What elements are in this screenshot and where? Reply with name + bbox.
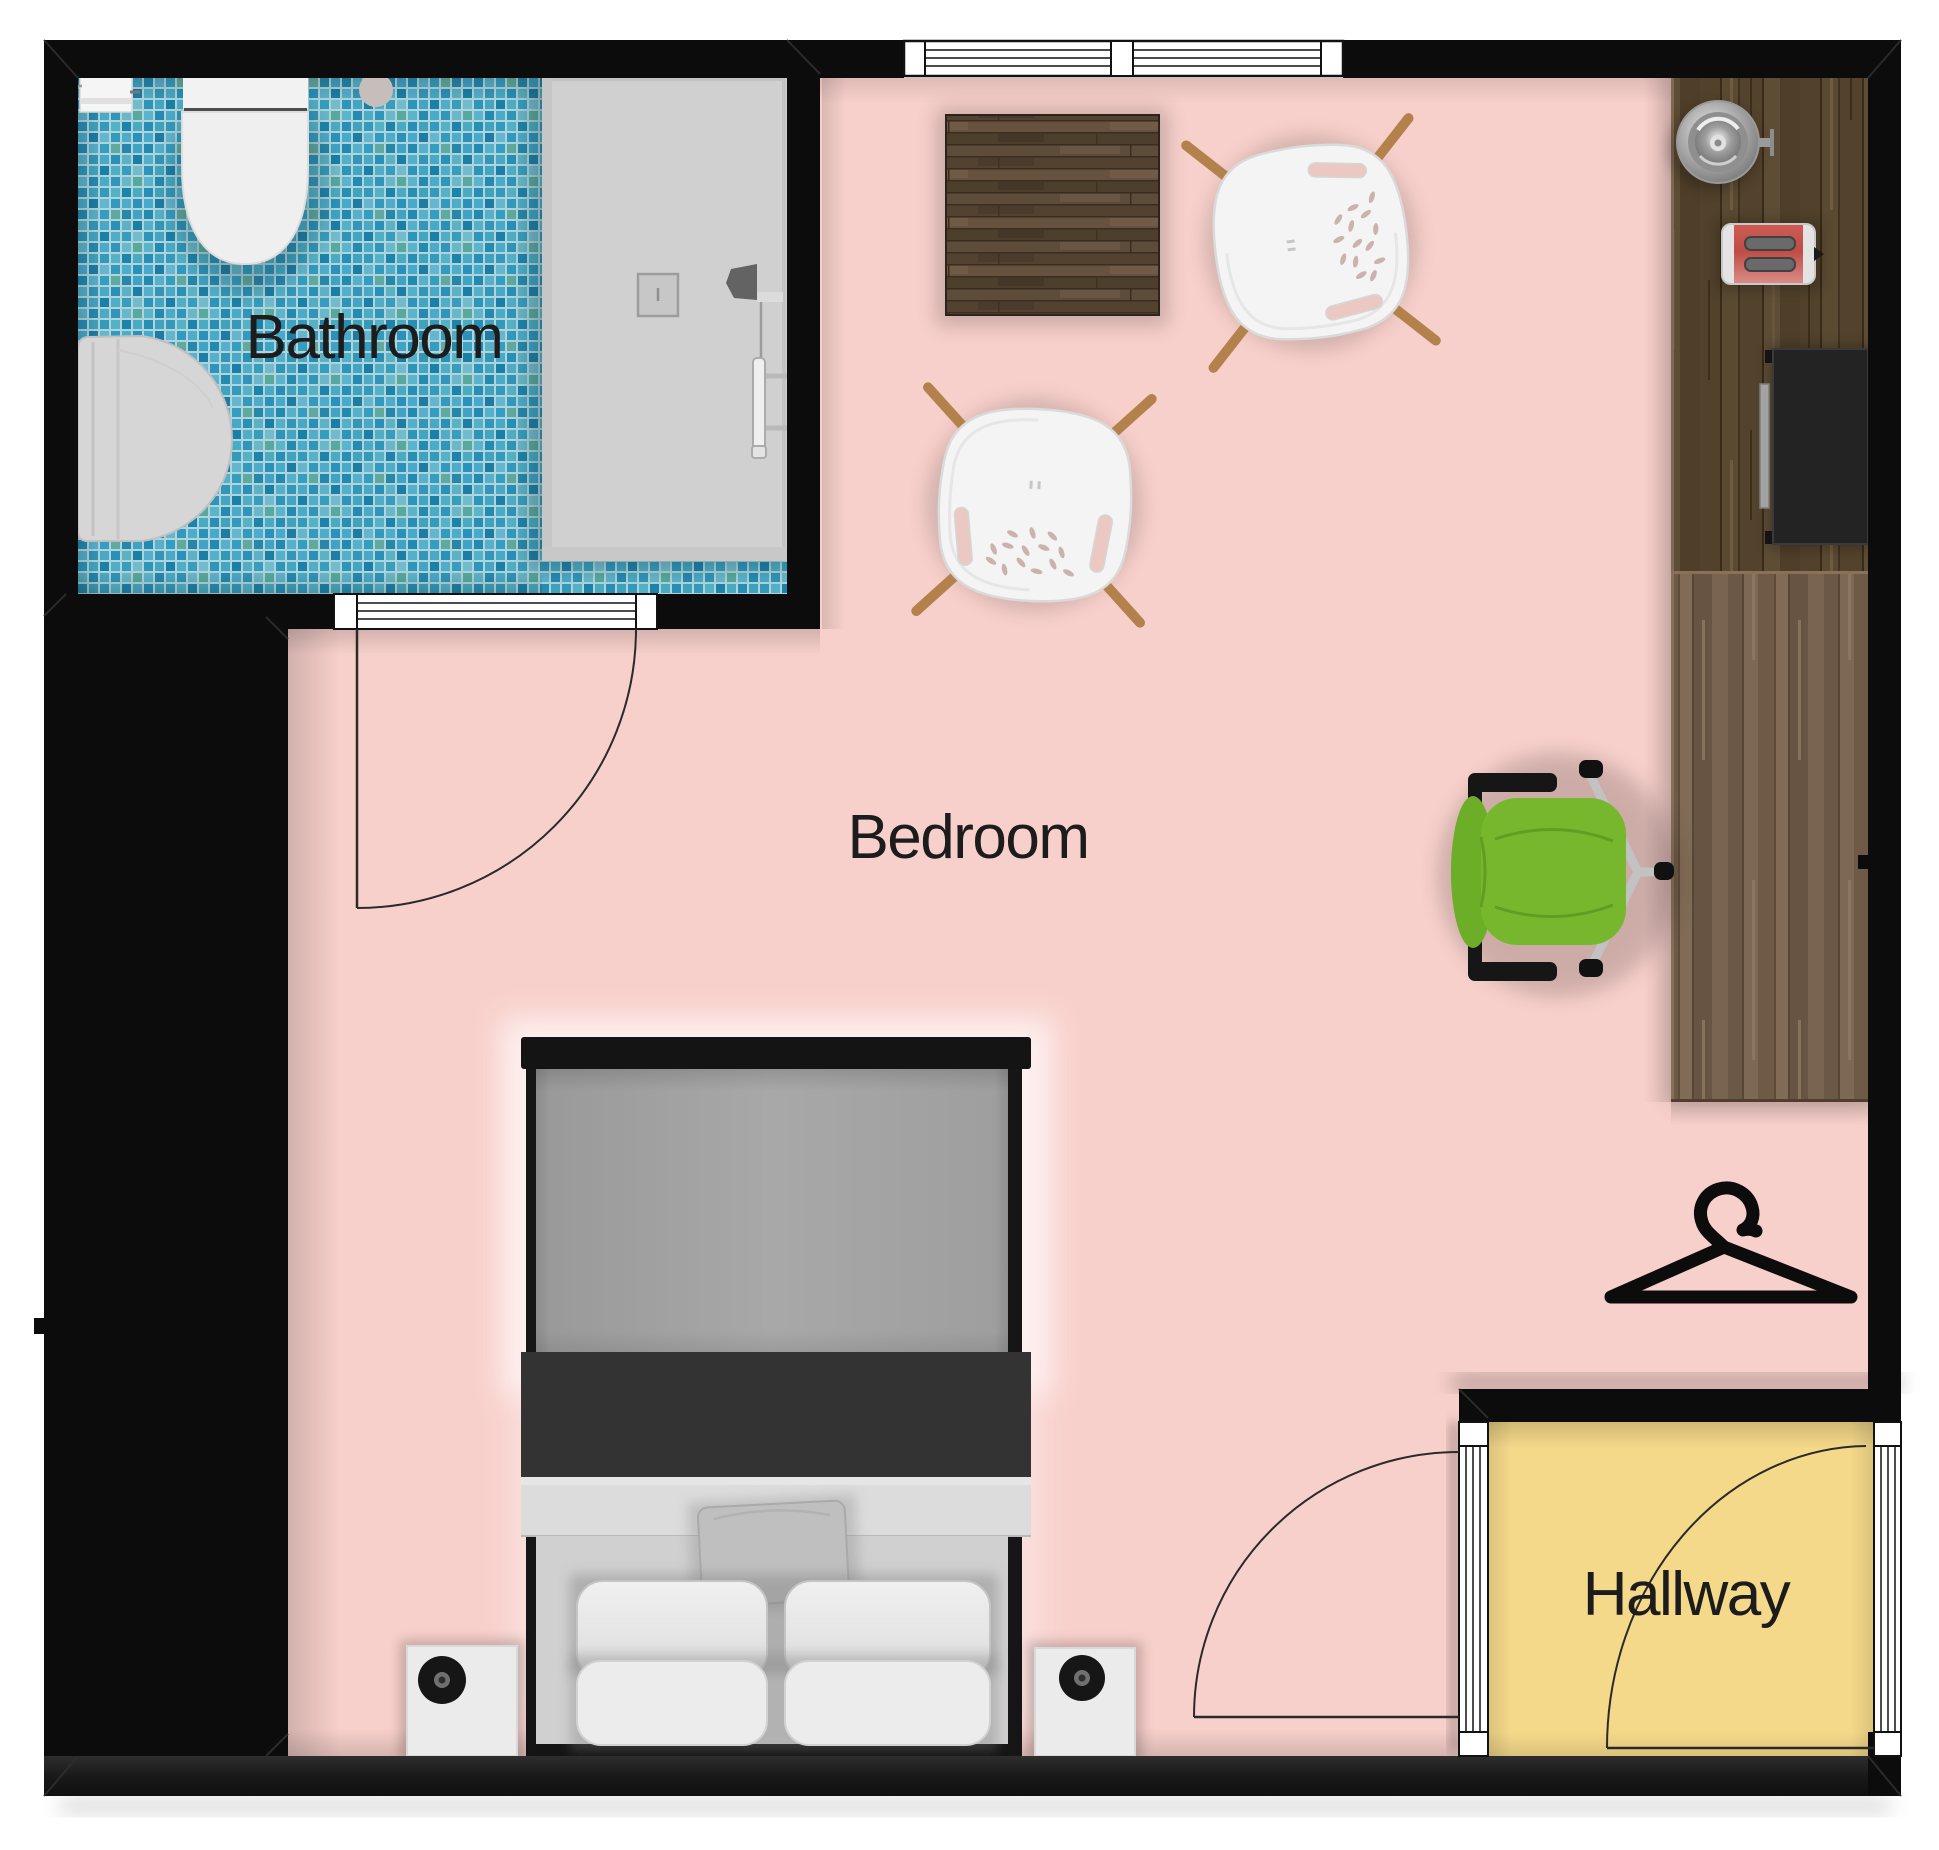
svg-text:Bedroom: Bedroom xyxy=(847,803,1088,872)
svg-text:Bathroom: Bathroom xyxy=(246,303,503,372)
svg-text:Hallway: Hallway xyxy=(1583,1560,1791,1629)
